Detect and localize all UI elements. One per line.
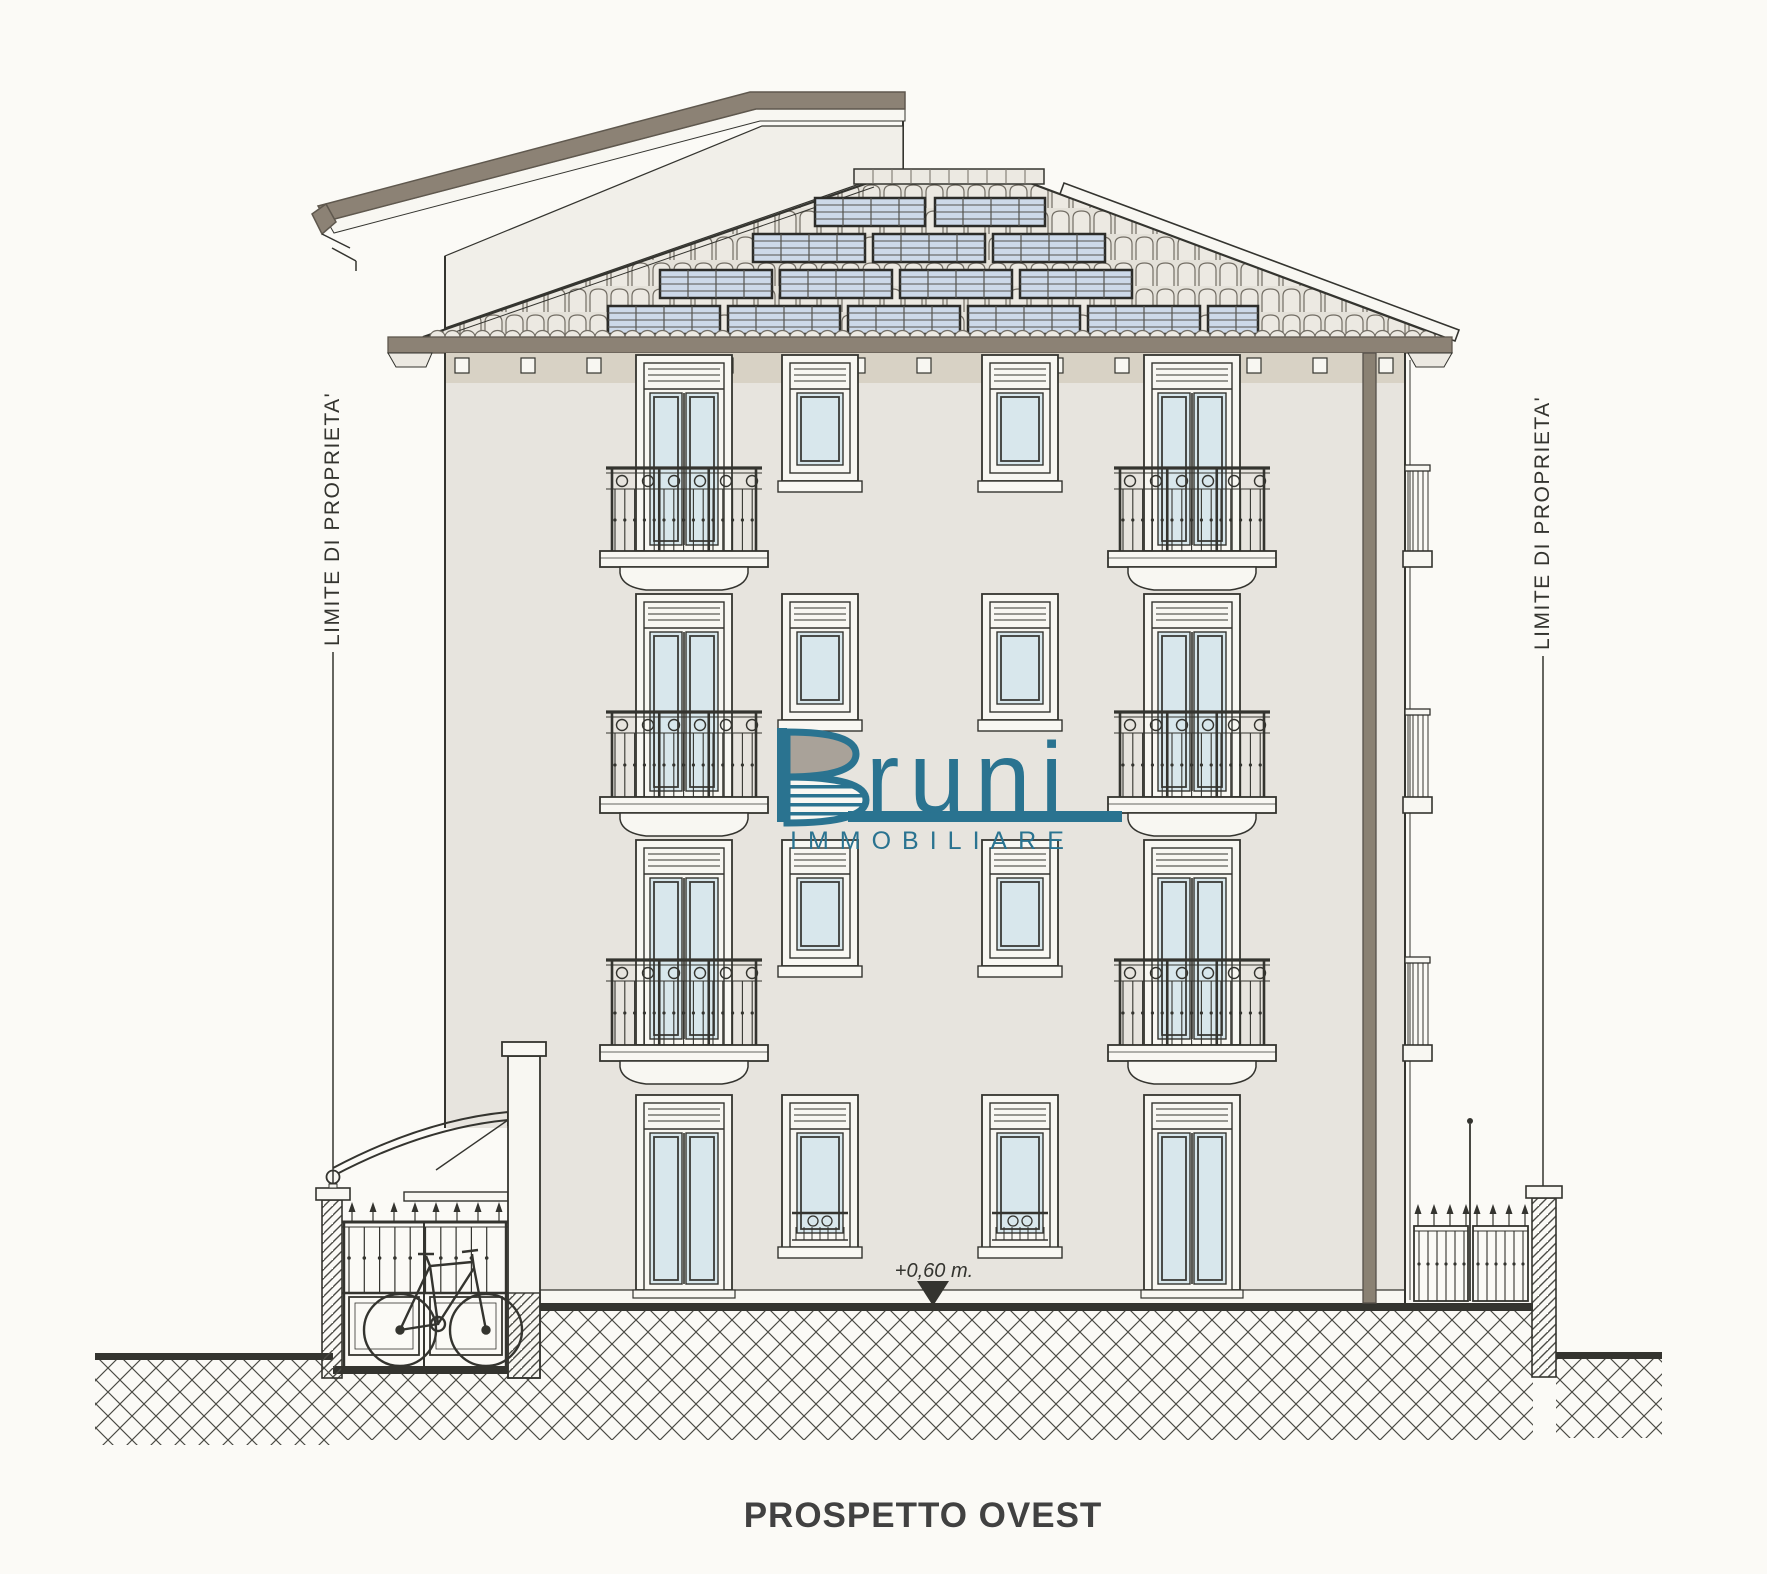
- door-threshold: [633, 1290, 735, 1298]
- baluster-dot: [633, 518, 636, 521]
- baluster-dot: [711, 763, 714, 766]
- fence-bar-dot: [1417, 1262, 1420, 1265]
- baluster-dot: [1229, 518, 1232, 521]
- baluster-dot: [682, 1011, 685, 1014]
- fence-bar-dot: [1453, 1262, 1456, 1265]
- baluster-dot: [672, 763, 675, 766]
- baluster-dot: [672, 518, 675, 521]
- baluster-dot: [1249, 1011, 1252, 1014]
- baluster-dot: [1259, 1011, 1262, 1014]
- baluster-dot: [682, 518, 685, 521]
- balcony-apron: [620, 1061, 748, 1084]
- baluster-dot: [1219, 518, 1222, 521]
- drawing-title: PROSPETTO OVEST: [744, 1496, 1103, 1535]
- baluster-dot: [692, 1011, 695, 1014]
- baluster-dot: [721, 763, 724, 766]
- watermark-logo: runi IMMOBILIARE: [777, 722, 1122, 855]
- gate-bar-dot: [393, 1256, 397, 1260]
- baluster-dot: [711, 1011, 714, 1014]
- spear-tip: [433, 1202, 440, 1212]
- baluster-dot: [1210, 518, 1213, 521]
- baluster-dot: [643, 763, 646, 766]
- baluster-dot: [653, 518, 656, 521]
- spear-tip: [1447, 1204, 1454, 1214]
- window-glass: [797, 393, 843, 465]
- baluster-dot: [1200, 518, 1203, 521]
- baluster-dot: [1141, 518, 1144, 521]
- baluster-dot: [613, 1011, 616, 1014]
- baluster-dot: [613, 763, 616, 766]
- pier-cap: [502, 1042, 546, 1056]
- pole-tip: [1467, 1118, 1473, 1124]
- finial-neck: [329, 1184, 337, 1188]
- baluster-dot: [1249, 518, 1252, 521]
- baluster-dot: [633, 1011, 636, 1014]
- rafter-block: [1379, 358, 1393, 373]
- balcony-apron: [1128, 567, 1256, 590]
- baluster-dot: [1131, 1011, 1134, 1014]
- baluster-dot: [662, 1011, 665, 1014]
- baluster-dot: [1180, 763, 1183, 766]
- side-balcony-slab: [1403, 551, 1432, 567]
- rafter-block: [455, 358, 469, 373]
- baluster-dot: [653, 763, 656, 766]
- baluster-dot: [672, 1011, 675, 1014]
- baluster-dot: [1249, 763, 1252, 766]
- fence-panel: [1473, 1226, 1528, 1301]
- spear-tip: [1490, 1204, 1497, 1214]
- side-balcony-slab: [1403, 797, 1432, 813]
- baluster-dot: [1170, 518, 1173, 521]
- fence-pillar-cap: [1526, 1186, 1562, 1198]
- baluster-dot: [731, 1011, 734, 1014]
- gutter-molding: [322, 234, 356, 271]
- baluster-dot: [682, 763, 685, 766]
- baluster-dot: [1259, 518, 1262, 521]
- spear-tip: [1522, 1204, 1529, 1214]
- gate-bar-dot: [363, 1256, 367, 1260]
- baluster-dot: [1239, 518, 1242, 521]
- baluster-dot: [653, 1011, 656, 1014]
- side-balcony-slab: [1403, 1045, 1432, 1061]
- fence-bar-dot: [1476, 1262, 1479, 1265]
- rafter-block: [917, 358, 931, 373]
- ground-hatch: [540, 1311, 1533, 1440]
- baluster-dot: [1151, 763, 1154, 766]
- baluster-dot: [1161, 1011, 1164, 1014]
- baluster-dot: [751, 518, 754, 521]
- baluster-dot: [1239, 763, 1242, 766]
- rafter-block: [1313, 358, 1327, 373]
- baluster-dot: [1151, 518, 1154, 521]
- elevation-sheet: runi IMMOBILIARE LIMITE DI PROPRIETA' LI…: [0, 0, 1767, 1574]
- baluster-dot: [741, 1011, 744, 1014]
- window-sill: [978, 1247, 1062, 1258]
- baluster-dot: [1141, 1011, 1144, 1014]
- baluster-dot: [1161, 518, 1164, 521]
- fence-bar-dot: [1512, 1262, 1515, 1265]
- gate-bar-dot: [378, 1256, 382, 1260]
- window-glass: [997, 878, 1043, 950]
- balcony-slab: [1108, 797, 1276, 813]
- baluster-dot: [731, 763, 734, 766]
- street-level-line: [1556, 1352, 1662, 1359]
- baluster-dot: [1180, 1011, 1183, 1014]
- gate-lower-panel: [430, 1297, 502, 1355]
- gate-bar-dot: [439, 1256, 443, 1260]
- spear-tip: [412, 1202, 419, 1212]
- spear-tip: [1506, 1204, 1513, 1214]
- rafter-block: [1115, 358, 1129, 373]
- fence-bar-dot: [1494, 1262, 1497, 1265]
- window-sill: [978, 966, 1062, 977]
- baluster-dot: [1121, 763, 1124, 766]
- gate-bar-dot: [485, 1256, 489, 1260]
- window-glass: [997, 1133, 1043, 1233]
- window-glass: [997, 632, 1043, 704]
- balcony-slab: [1108, 1045, 1276, 1061]
- window-glass: [797, 1133, 843, 1233]
- baluster-dot: [702, 518, 705, 521]
- gate-lower-panel: [349, 1297, 419, 1355]
- baluster-dot: [741, 763, 744, 766]
- fence-bar-dot: [1435, 1262, 1438, 1265]
- window-sill: [778, 966, 862, 977]
- balcony-slab: [600, 797, 768, 813]
- baluster-dot: [741, 518, 744, 521]
- baluster-dot: [1200, 763, 1203, 766]
- baluster-dot: [721, 518, 724, 521]
- baluster-dot: [1229, 1011, 1232, 1014]
- fence-bar-dot: [1462, 1262, 1465, 1265]
- baluster-dot: [643, 1011, 646, 1014]
- baluster-dot: [731, 518, 734, 521]
- window-sill: [978, 481, 1062, 492]
- spear-tip: [370, 1202, 377, 1212]
- door-threshold: [1141, 1290, 1243, 1298]
- baluster-dot: [1131, 518, 1134, 521]
- baluster-dot: [623, 518, 626, 521]
- balcony-apron: [1128, 813, 1256, 836]
- baluster-dot: [1210, 763, 1213, 766]
- baluster-dot: [623, 1011, 626, 1014]
- baluster-dot: [1170, 1011, 1173, 1014]
- baluster-dot: [623, 763, 626, 766]
- baluster-dot: [1200, 1011, 1203, 1014]
- side-balcony-cap: [1405, 465, 1430, 471]
- rafter-block: [521, 358, 535, 373]
- baluster-dot: [1141, 763, 1144, 766]
- ground-hatch: [333, 1374, 540, 1440]
- baluster-dot: [751, 1011, 754, 1014]
- baluster-dot: [613, 518, 616, 521]
- baluster-dot: [1161, 763, 1164, 766]
- baluster-dot: [1219, 763, 1222, 766]
- baluster-dot: [1259, 763, 1262, 766]
- fence-pillar: [1532, 1198, 1556, 1377]
- baluster-dot: [1190, 1011, 1193, 1014]
- baluster-dot: [662, 518, 665, 521]
- gate-bar-dot: [408, 1256, 412, 1260]
- eave-return-right: [1408, 353, 1452, 367]
- spear-tip: [1474, 1204, 1481, 1214]
- baluster-dot: [721, 1011, 724, 1014]
- baluster-dot: [1170, 763, 1173, 766]
- gate-bar-dot: [454, 1256, 458, 1260]
- fence-panel: [1414, 1226, 1468, 1301]
- side-balcony-cap: [1405, 709, 1430, 715]
- baluster-dot: [643, 518, 646, 521]
- elevation-drawing: runi IMMOBILIARE LIMITE DI PROPRIETA' LI…: [0, 0, 1767, 1574]
- fence-bar-dot: [1444, 1262, 1447, 1265]
- rafter-block: [587, 358, 601, 373]
- brand-subtitle: IMMOBILIARE: [790, 827, 1075, 855]
- fence-bar-dot: [1426, 1262, 1429, 1265]
- rafter-block: [1247, 358, 1261, 373]
- balcony-apron: [1128, 1061, 1256, 1084]
- baluster-dot: [1210, 1011, 1213, 1014]
- baluster-dot: [1219, 1011, 1222, 1014]
- eave-band: [388, 337, 1452, 353]
- baluster-dot: [1239, 1011, 1242, 1014]
- baluster-dot: [702, 763, 705, 766]
- baluster-dot: [1121, 1011, 1124, 1014]
- spear-tip: [349, 1202, 356, 1212]
- ground-hatch: [95, 1360, 333, 1445]
- fence-bar-dot: [1503, 1262, 1506, 1265]
- bicycle-shelter: [316, 1042, 546, 1440]
- baluster-dot: [1121, 518, 1124, 521]
- eave-return-left: [388, 353, 432, 367]
- logo-b-top-bowl: [787, 732, 856, 777]
- fence-bar-dot: [1485, 1262, 1488, 1265]
- baluster-dot: [1190, 763, 1193, 766]
- window-glass: [797, 878, 843, 950]
- side-balcony-cap: [1405, 957, 1430, 963]
- street-level-line: [95, 1353, 333, 1360]
- gate-bar-dot: [347, 1256, 351, 1260]
- balcony-slab: [1108, 551, 1276, 567]
- fence-post-cap: [316, 1188, 350, 1200]
- property-limit-label-right: LIMITE DI PROPRIETA': [1531, 396, 1554, 650]
- baluster-dot: [692, 518, 695, 521]
- spear-tip: [391, 1202, 398, 1212]
- window-sill: [778, 1247, 862, 1258]
- level-marker-label: +0,60 m.: [895, 1260, 973, 1282]
- fence-post: [322, 1200, 342, 1378]
- baluster-dot: [1151, 1011, 1154, 1014]
- spear-tip: [1463, 1204, 1470, 1214]
- window-glass: [997, 393, 1043, 465]
- downpipe: [1363, 353, 1376, 1303]
- window-glass: [797, 632, 843, 704]
- baluster-dot: [1180, 518, 1183, 521]
- fence-bar-dot: [1521, 1262, 1524, 1265]
- side-balconies: [1403, 465, 1432, 1061]
- spear-tip: [1415, 1204, 1422, 1214]
- window-sill: [778, 481, 862, 492]
- baluster-dot: [633, 763, 636, 766]
- baluster-dot: [662, 763, 665, 766]
- baluster-dot: [711, 518, 714, 521]
- canopy-beam: [404, 1192, 508, 1201]
- baluster-dot: [751, 763, 754, 766]
- spear-tip: [1431, 1204, 1438, 1214]
- balcony-apron: [620, 567, 748, 590]
- ground-level-line: [540, 1303, 1533, 1311]
- baluster-dot: [1190, 518, 1193, 521]
- balcony-slab: [600, 551, 768, 567]
- baluster-dot: [702, 1011, 705, 1014]
- baluster-dot: [692, 763, 695, 766]
- brand-wordmark: runi: [866, 722, 1073, 834]
- ground-hatch: [1556, 1359, 1662, 1438]
- baluster-dot: [1131, 763, 1134, 766]
- baluster-dot: [1229, 763, 1232, 766]
- balcony-apron: [620, 813, 748, 836]
- balcony-slab: [600, 1045, 768, 1061]
- property-limit-label-left: LIMITE DI PROPRIETA': [321, 392, 344, 646]
